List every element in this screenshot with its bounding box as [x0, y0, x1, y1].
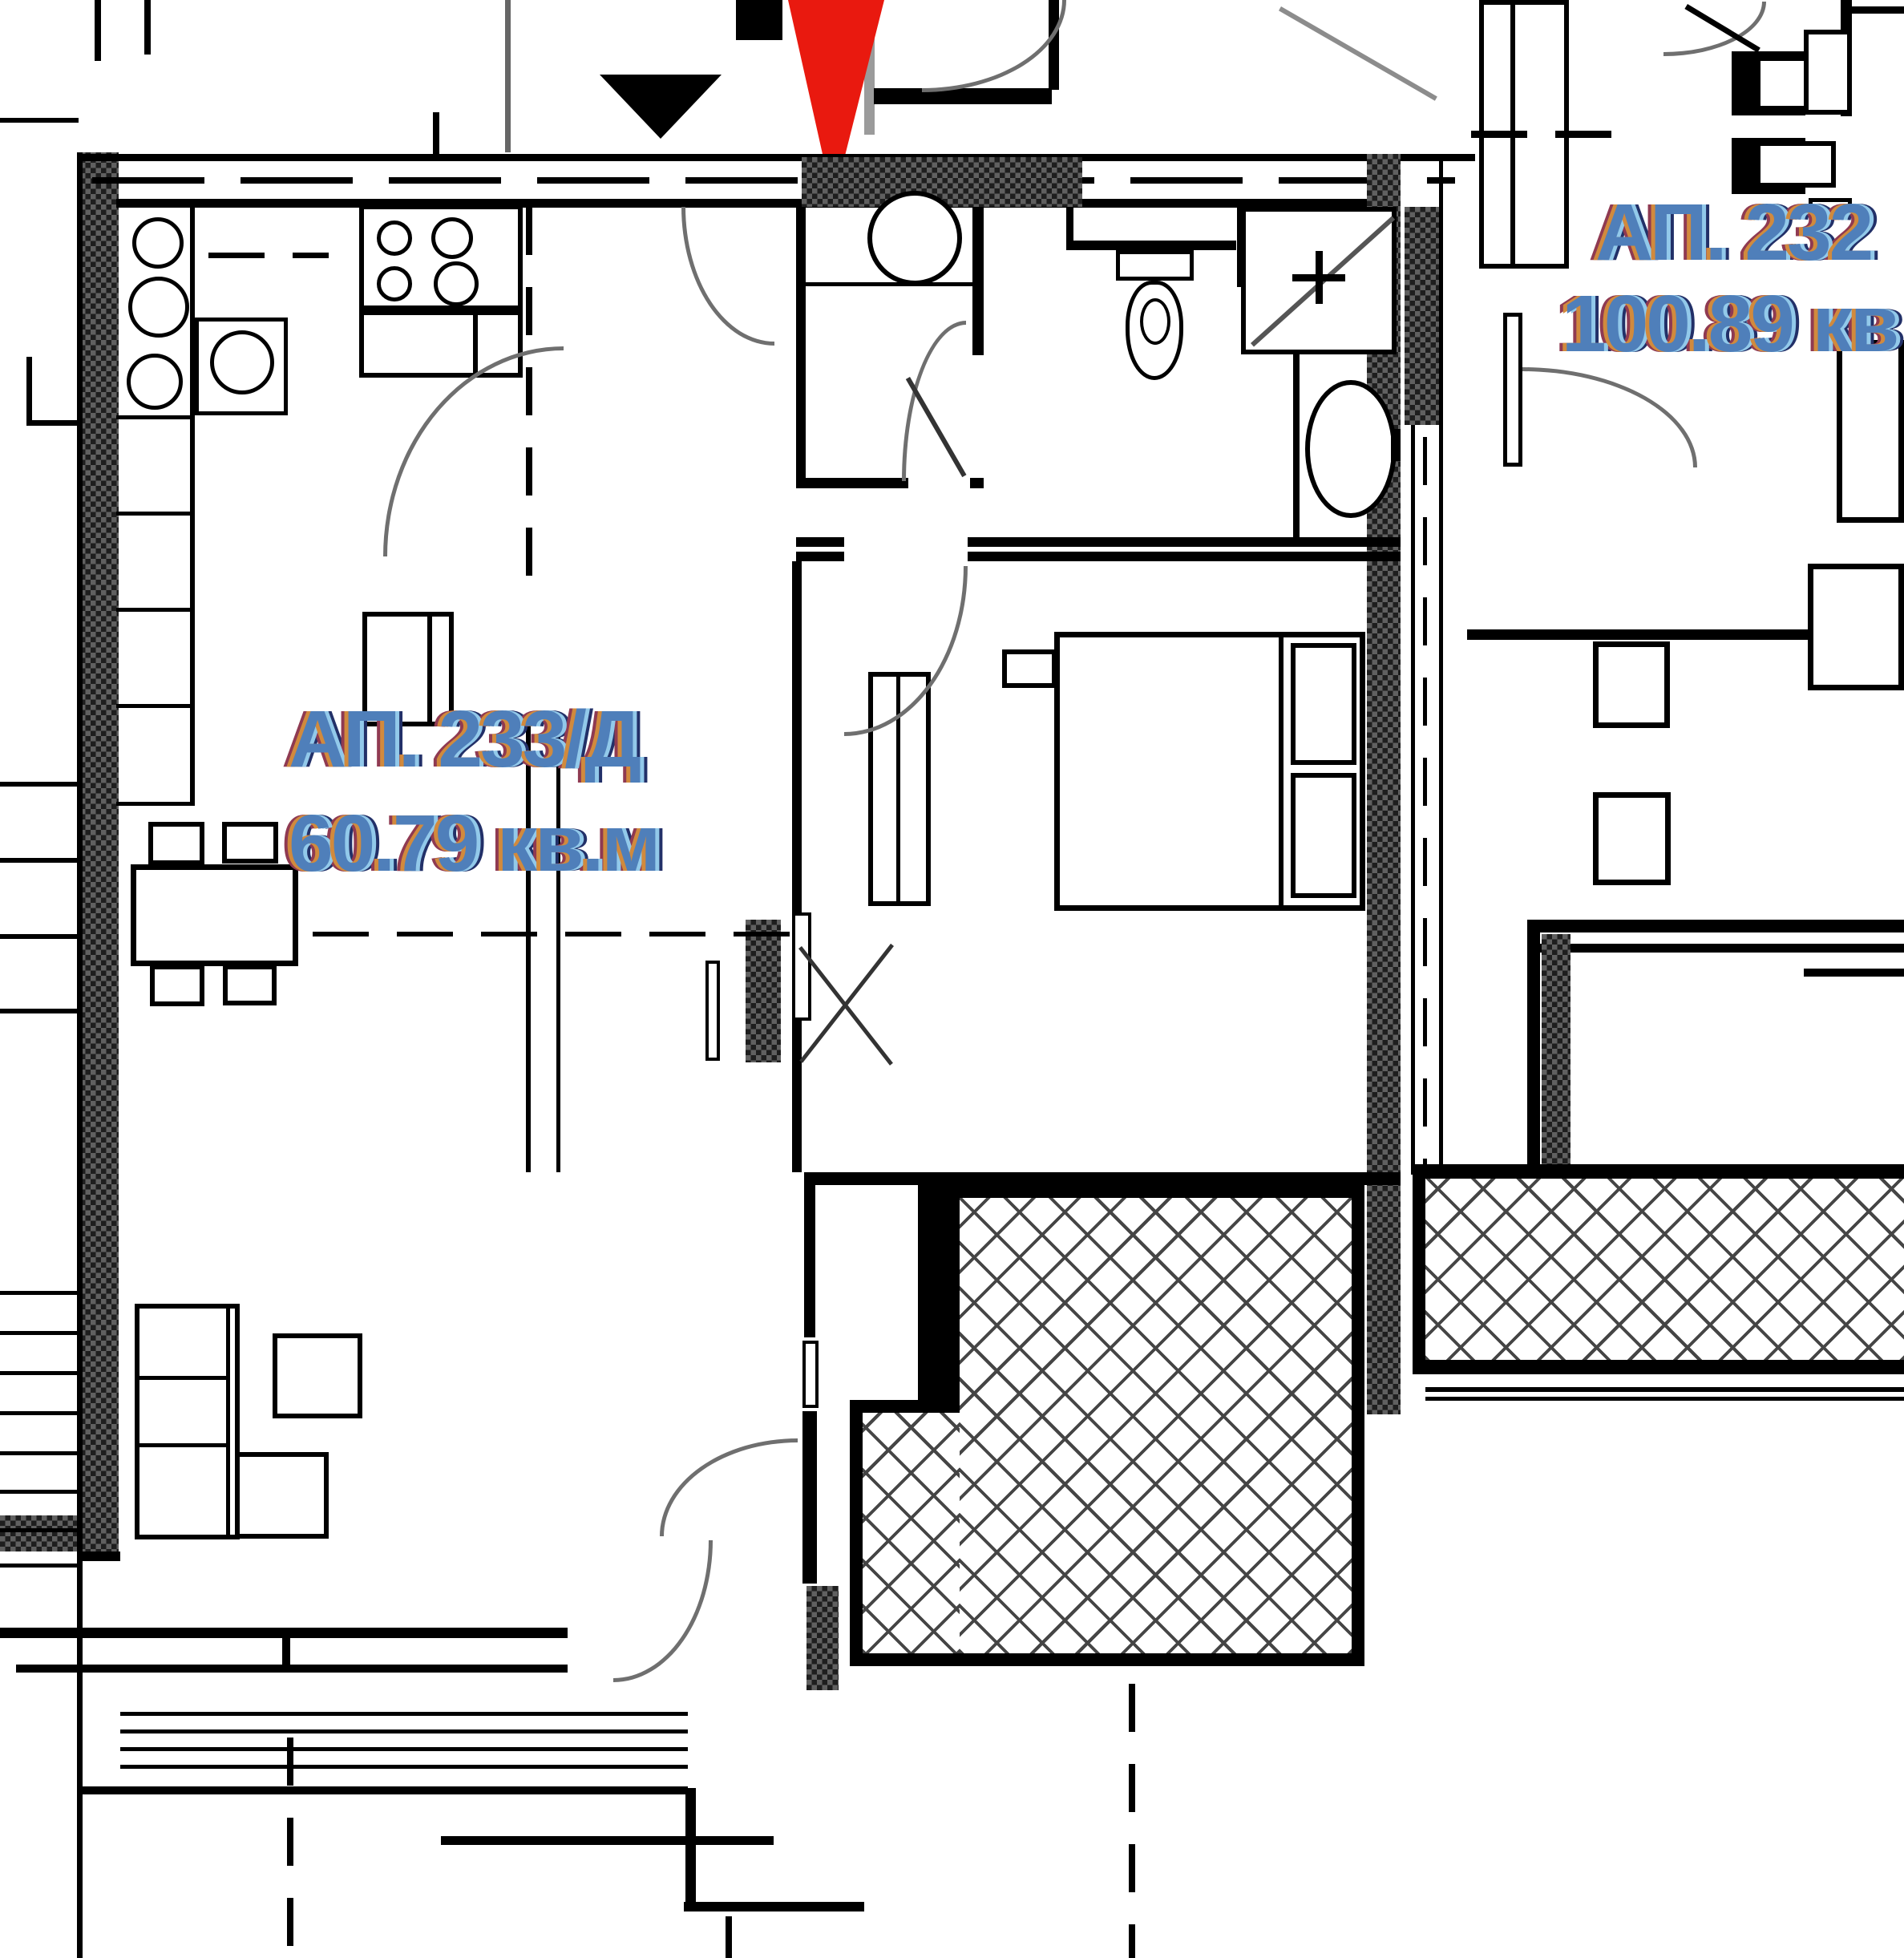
wall-left-hatch: [80, 152, 119, 1551]
balcony-wall: [918, 1185, 947, 1406]
wall-bathroom-bottom: [796, 478, 908, 488]
wall-bathroom-left: [796, 207, 806, 487]
apartment-232-id: АП. 232: [1595, 192, 1897, 273]
door-arc-common-hall: [922, 0, 1066, 92]
wall-bedroom-bottom: [804, 1172, 1401, 1185]
stair-tread: [0, 1331, 77, 1335]
window-sill-thick: [80, 1786, 688, 1794]
stair-tread: [0, 858, 77, 863]
balcony-border: [1413, 1360, 1904, 1374]
wall-line: [1439, 154, 1443, 1175]
section-line: [726, 1916, 732, 1958]
wall-stub: [736, 0, 782, 40]
counter-divider: [473, 310, 478, 378]
wall-bathroom-bottom: [970, 478, 984, 488]
apartment-233-id: АП. 233/Д: [289, 699, 658, 779]
stair-mark: [26, 357, 32, 426]
sink-bowl: [132, 217, 184, 269]
counter-shelf: [116, 415, 192, 419]
balcony-hatch: [960, 1198, 1352, 1653]
chair: [223, 965, 277, 1005]
wall-segment: [0, 118, 79, 123]
stair-tread: [0, 1528, 77, 1532]
washbasin: [1305, 380, 1397, 518]
bathroom-sink: [867, 191, 962, 285]
balcony-border: [850, 1400, 863, 1666]
wall-hatch-pier: [746, 920, 781, 1062]
burner: [377, 220, 412, 256]
stair-tread: [0, 1490, 77, 1494]
section-line-stub: [433, 112, 439, 156]
shower-drain-cross: [1316, 251, 1323, 304]
wall-segment: [16, 1665, 568, 1673]
chair: [148, 822, 204, 865]
balcony-line: [1425, 1387, 1904, 1392]
sofa-seat-line: [139, 1376, 229, 1380]
wall-segment: [1527, 920, 1904, 932]
stair-tread: [0, 782, 77, 787]
balcony-border: [1352, 1185, 1364, 1666]
party-wall-hatch: [1405, 207, 1440, 425]
zone-divider-dashed: [313, 932, 792, 937]
wall-corridor: [792, 561, 802, 1172]
wall-segment: [282, 1628, 290, 1673]
sink-bowl: [128, 277, 189, 338]
chair: [150, 965, 204, 1006]
wall-top-outer: [80, 154, 1475, 161]
wall-segment: [802, 1411, 817, 1584]
section-line: [287, 1738, 293, 1958]
window-line: [120, 1712, 688, 1716]
apartment-233-area: 60.79 кв.м: [289, 803, 658, 884]
wall-bedroom-top: [968, 537, 1401, 547]
pillow: [1291, 643, 1356, 765]
furniture-rect: [1808, 564, 1904, 690]
wall-segment: [1841, 6, 1904, 14]
dining-table: [131, 864, 298, 966]
stair-tread: [0, 1564, 77, 1568]
wall-segment: [1527, 944, 1904, 953]
toilet-bowl-inner: [1140, 298, 1170, 345]
sink-unit-bowl: [210, 330, 274, 394]
apartment-232-label-group: АП. 232 100.89 кв: [1595, 192, 1897, 364]
counter-shelf: [116, 608, 192, 612]
balcony-border: [1413, 1164, 1904, 1179]
coffee-table: [273, 1333, 362, 1418]
stair-tread: [0, 1451, 77, 1455]
door-leaf-common-hall: [1279, 6, 1437, 101]
kitchen-appliance: [1756, 141, 1836, 188]
window-line: [120, 1765, 688, 1769]
window-line: [120, 1747, 688, 1751]
burner: [431, 217, 473, 259]
furniture-rect: [1593, 792, 1671, 885]
upper-cabinet-dashed: [208, 253, 329, 258]
sofa-seat-line: [139, 1443, 229, 1447]
wall-segment: [804, 1185, 815, 1337]
railing-line: [505, 0, 511, 152]
wall-stub: [1066, 207, 1073, 247]
wall-bedroom-top: [968, 552, 1401, 561]
burner: [377, 266, 412, 301]
wall-hatch-pier: [1542, 934, 1570, 1167]
furniture-rect: [1593, 641, 1670, 728]
section-line-stub: [144, 0, 151, 55]
toilet-cistern: [1116, 250, 1194, 281]
counter-shelf: [116, 704, 192, 708]
wall-bathroom-wc: [972, 207, 984, 355]
armchair: [235, 1452, 329, 1539]
floor-plan-page: { "labels": { "unit_left": { "id": "АП. …: [0, 0, 1904, 1958]
door-arc-kitchen: [383, 346, 564, 556]
door-leaf: [705, 961, 720, 1061]
wall-line: [1411, 425, 1415, 1175]
apartment-233-label-group: АП. 233/Д 60.79 кв.м: [289, 699, 658, 884]
stair-mark: [26, 420, 79, 426]
balcony-border: [947, 1185, 960, 1413]
pillow: [1291, 773, 1356, 898]
washbasin-tap: [1391, 429, 1401, 461]
window-sill: [1804, 969, 1904, 977]
door-arc-entrance: [681, 207, 774, 346]
wall-bedroom-top: [796, 537, 844, 547]
chair: [222, 822, 278, 864]
wall-segment: [685, 1788, 696, 1910]
stair-tread: [0, 1009, 77, 1013]
door-leaf: [1503, 313, 1522, 467]
burner: [434, 261, 479, 306]
wall-hatch-stub: [0, 1515, 80, 1551]
stair-tread: [0, 1291, 77, 1295]
wall-segment: [1527, 920, 1540, 1176]
counter-shelf: [116, 802, 192, 806]
balcony-border: [850, 1653, 1364, 1666]
wall-stub: [1293, 354, 1300, 547]
window-line: [120, 1729, 688, 1733]
door-leaf: [802, 1341, 819, 1408]
sofa-back-line: [226, 1309, 230, 1535]
door-arc-balcony: [613, 1540, 713, 1682]
section-line: [1129, 1684, 1135, 1958]
door-arc-right-apartment: [1522, 367, 1697, 467]
stair-tread: [0, 1371, 77, 1375]
section-line-stub: [95, 0, 101, 61]
balcony-border: [947, 1185, 1364, 1198]
counter-edge: [190, 204, 195, 806]
wall-bedroom-top: [796, 552, 844, 561]
apartment-232-area: 100.89 кв: [1562, 284, 1897, 364]
sofa: [135, 1304, 240, 1539]
wall-dash-segment: [1471, 131, 1611, 138]
stair-tread: [0, 934, 77, 939]
balcony-hatch: [863, 1413, 960, 1653]
balcony-border: [850, 1400, 954, 1413]
sink-bowl: [127, 354, 183, 410]
wall-wc-cistern: [1066, 241, 1236, 250]
wall-top-dashdot: [92, 177, 1455, 184]
door-arc-bedroom: [844, 566, 968, 736]
black-triangle-down-icon: [600, 75, 722, 139]
wall-segment: [874, 88, 1052, 104]
bed-headboard-line: [1279, 635, 1283, 908]
party-wall-dashline: [1423, 437, 1427, 1167]
door-leaf: [792, 912, 811, 1021]
kitchen-cabinet: [1804, 30, 1852, 115]
counter-shelf: [116, 512, 192, 516]
stair-tread: [0, 1411, 77, 1415]
sink-counter-line: [806, 282, 972, 286]
wall-hatch-pier: [806, 1586, 839, 1690]
nightstand: [1002, 649, 1057, 688]
balcony-hatch: [1425, 1179, 1904, 1360]
balcony-line: [1425, 1397, 1904, 1401]
wall-segment: [441, 1836, 774, 1845]
door-arc-balcony: [660, 1438, 798, 1536]
wall-segment: [684, 1902, 864, 1911]
wall-cap: [80, 1551, 120, 1561]
balcony-border: [1413, 1164, 1425, 1374]
